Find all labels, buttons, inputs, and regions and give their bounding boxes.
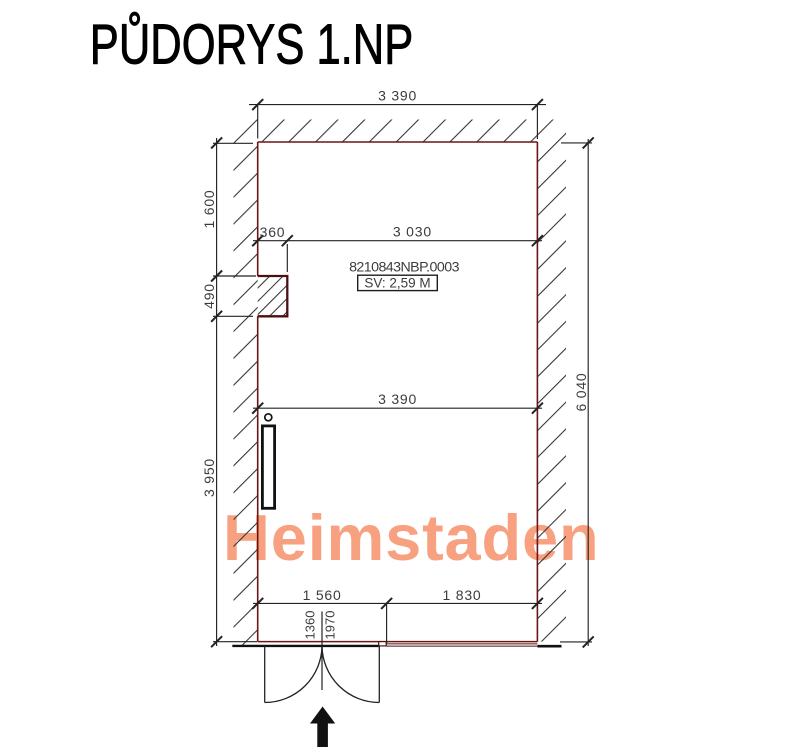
svg-text:1970: 1970	[323, 611, 338, 640]
svg-text:3 030: 3 030	[393, 224, 432, 240]
svg-text:PŮDORYS 1.NP: PŮDORYS 1.NP	[90, 12, 413, 76]
svg-text:1 560: 1 560	[303, 587, 342, 603]
svg-text:1360: 1360	[303, 611, 318, 640]
svg-text:3 950: 3 950	[201, 458, 217, 497]
svg-text:SV: 2,59 M: SV: 2,59 M	[364, 276, 430, 291]
svg-text:6 040: 6 040	[573, 372, 589, 411]
svg-text:1 600: 1 600	[201, 189, 217, 228]
svg-text:3 390: 3 390	[378, 391, 417, 407]
svg-text:1 830: 1 830	[442, 587, 481, 603]
svg-text:3 390: 3 390	[378, 87, 417, 103]
svg-text:490: 490	[201, 283, 217, 309]
svg-text:8210843NBP.0003: 8210843NBP.0003	[349, 259, 459, 275]
svg-text:360: 360	[260, 224, 286, 240]
